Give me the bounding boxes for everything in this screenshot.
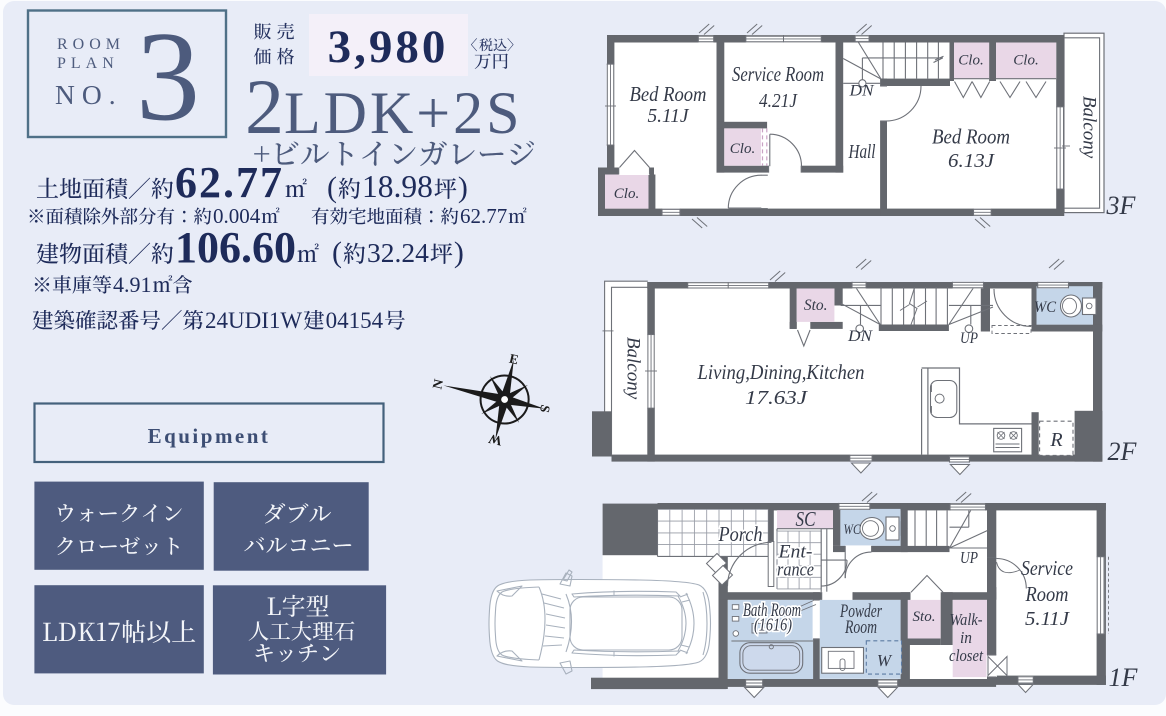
svg-text:Bed Room: Bed Room (932, 125, 1010, 149)
svg-text:18.98: 18.98 (362, 169, 433, 204)
svg-text:106.60: 106.60 (175, 223, 296, 272)
svg-text:(: ( (332, 236, 342, 269)
svg-text:rance: rance (777, 560, 814, 581)
svg-text:): ) (458, 171, 468, 204)
svg-text:UP: UP (960, 548, 978, 567)
svg-text:Equipment: Equipment (148, 424, 271, 448)
svg-text:Sto.: Sto. (804, 297, 828, 314)
svg-text:Room: Room (1025, 582, 1069, 606)
svg-text:PLAN: PLAN (57, 55, 119, 72)
svg-text:Porch: Porch (718, 522, 763, 546)
svg-text:DN: DN (847, 328, 874, 345)
svg-text:Clo.: Clo. (1013, 53, 1038, 69)
svg-text:Sto.: Sto. (913, 609, 936, 625)
svg-text:): ) (454, 236, 464, 269)
svg-text:DN: DN (848, 83, 875, 100)
svg-text:(1616): (1616) (754, 615, 792, 635)
svg-text:Bed Room: Bed Room (630, 82, 707, 106)
svg-text:3: 3 (136, 6, 200, 148)
svg-text:Living,Dining,Kitchen: Living,Dining,Kitchen (697, 360, 865, 384)
svg-text:5.11J: 5.11J (648, 105, 690, 127)
svg-text:R: R (1049, 429, 1062, 451)
svg-text:Walk-: Walk- (950, 610, 983, 629)
svg-text:W: W (877, 651, 893, 670)
svg-text:5.11J: 5.11J (1025, 608, 1070, 630)
svg-text:closet: closet (949, 646, 984, 665)
svg-text:Service: Service (1021, 556, 1073, 580)
svg-text:Room: Room (844, 618, 877, 638)
svg-text:Clo.: Clo. (614, 186, 639, 202)
svg-text:Clo.: Clo. (730, 141, 755, 157)
svg-text:62.77: 62.77 (460, 204, 507, 228)
svg-text:SC: SC (796, 507, 817, 531)
svg-text:UP: UP (960, 330, 978, 347)
svg-text:Balcony: Balcony (1079, 96, 1100, 159)
svg-text:ROOM: ROOM (57, 36, 125, 53)
svg-text:24UDI1W: 24UDI1W (205, 308, 302, 333)
svg-text:2F: 2F (1108, 437, 1138, 466)
svg-text:32.24: 32.24 (367, 237, 429, 268)
svg-text:4.91: 4.91 (113, 272, 152, 297)
svg-text:Clo.: Clo. (958, 53, 983, 69)
svg-text:in: in (960, 628, 972, 647)
svg-text:17.63J: 17.63J (745, 387, 808, 409)
svg-text:WC: WC (1034, 299, 1056, 316)
svg-text:NO.: NO. (55, 79, 123, 110)
svg-text:WC: WC (844, 522, 862, 538)
svg-text:3F: 3F (1106, 191, 1137, 220)
svg-text:(: ( (327, 171, 337, 204)
svg-text:Hall: Hall (848, 141, 876, 163)
svg-text:62.77: 62.77 (175, 158, 284, 207)
svg-text:6.13J: 6.13J (948, 150, 995, 172)
svg-text:04154: 04154 (326, 308, 384, 333)
svg-text:4.21J: 4.21J (759, 90, 798, 112)
svg-text:Service Room: Service Room (732, 62, 824, 86)
svg-text:3,980: 3,980 (328, 21, 449, 73)
svg-text:1F: 1F (1109, 663, 1139, 692)
svg-text:Balcony: Balcony (623, 337, 644, 400)
